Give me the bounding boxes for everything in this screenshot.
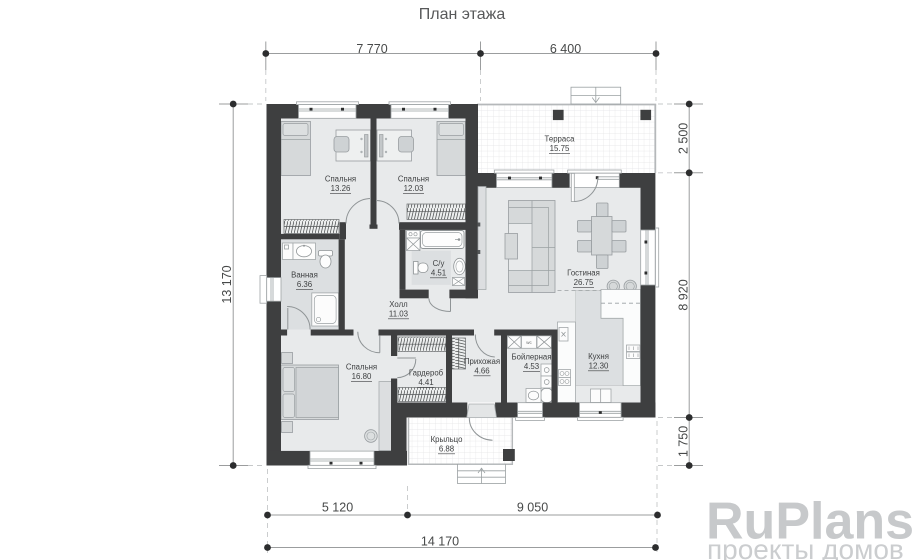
- svg-text:Ванная: Ванная: [291, 271, 318, 280]
- svg-text:12.03: 12.03: [404, 184, 424, 193]
- svg-text:14 170: 14 170: [421, 535, 459, 549]
- svg-text:6.88: 6.88: [439, 445, 455, 454]
- svg-text:8 920: 8 920: [677, 279, 691, 310]
- svg-text:4.66: 4.66: [474, 367, 490, 376]
- svg-text:4.53: 4.53: [524, 362, 540, 371]
- svg-text:15.75: 15.75: [550, 144, 570, 153]
- svg-text:11.03: 11.03: [389, 310, 409, 319]
- svg-text:7 770: 7 770: [356, 42, 387, 56]
- svg-text:Спальня: Спальня: [346, 363, 377, 372]
- svg-text:Кухня: Кухня: [588, 352, 609, 361]
- svg-text:6.36: 6.36: [297, 280, 313, 289]
- svg-text:16.80: 16.80: [352, 372, 372, 381]
- svg-text:Прихожая: Прихожая: [464, 357, 500, 366]
- svg-text:Терраса: Терраса: [545, 135, 576, 144]
- svg-text:wc: wc: [526, 340, 532, 345]
- svg-text:План этажа: План этажа: [419, 6, 506, 23]
- svg-text:4.41: 4.41: [418, 378, 433, 387]
- svg-text:2 500: 2 500: [677, 123, 691, 154]
- svg-text:Спальня: Спальня: [398, 175, 429, 184]
- svg-text:9 050: 9 050: [517, 501, 548, 515]
- svg-text:С/у: С/у: [433, 259, 445, 268]
- svg-text:Холл: Холл: [389, 300, 408, 309]
- svg-text:Гостиная: Гостиная: [567, 269, 600, 278]
- svg-text:1 750: 1 750: [677, 426, 691, 457]
- svg-text:Бойлерная: Бойлерная: [512, 353, 552, 362]
- svg-text:проекты домов: проекты домов: [707, 534, 904, 560]
- svg-text:4.51: 4.51: [431, 269, 446, 278]
- svg-text:13.26: 13.26: [331, 184, 351, 193]
- svg-text:Спальня: Спальня: [325, 175, 356, 184]
- svg-text:Крыльцо: Крыльцо: [431, 435, 463, 444]
- svg-text:13 170: 13 170: [220, 265, 234, 303]
- svg-text:6 400: 6 400: [550, 42, 581, 56]
- svg-text:12.30: 12.30: [589, 362, 609, 371]
- svg-text:Гардероб: Гардероб: [409, 369, 444, 378]
- svg-text:26.75: 26.75: [574, 278, 594, 287]
- svg-text:5 120: 5 120: [322, 501, 353, 515]
